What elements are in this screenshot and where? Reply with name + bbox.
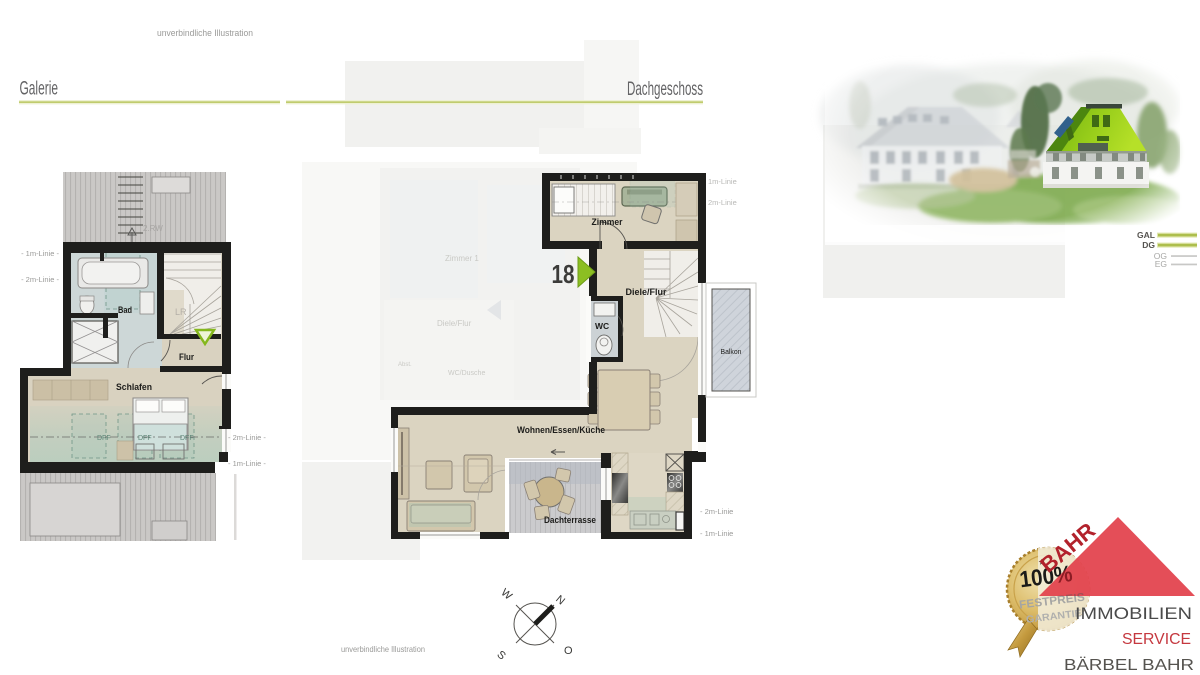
svg-text:Abst.: Abst.	[398, 362, 412, 368]
svg-text:Galerie: Galerie	[20, 78, 59, 100]
svg-text:Schlafen: Schlafen	[116, 382, 152, 392]
svg-text:Diele/Flur: Diele/Flur	[626, 287, 667, 298]
svg-text:unverbindliche Illustration: unverbindliche Illustration	[157, 28, 253, 38]
svg-text:DFF: DFF	[138, 435, 152, 442]
svg-text:Dachgeschoss: Dachgeschoss	[627, 78, 703, 100]
svg-text:- 2m-Linie -: - 2m-Linie -	[228, 433, 266, 442]
svg-text:18: 18	[552, 259, 575, 289]
svg-text:WC: WC	[595, 321, 609, 331]
svg-text:Balkon: Balkon	[721, 347, 742, 356]
svg-text:unverbindliche Illustration: unverbindliche Illustration	[341, 644, 425, 654]
svg-text:Wohnen/Essen/Küche: Wohnen/Essen/Küche	[517, 425, 605, 436]
svg-text:2m-Linie: 2m-Linie	[708, 198, 737, 207]
svg-text:1m-Linie: 1m-Linie	[708, 177, 737, 186]
svg-text:DG: DG	[1142, 240, 1155, 250]
svg-text:- 2m-Linie: - 2m-Linie	[700, 507, 733, 516]
svg-text:Diele/Flur: Diele/Flur	[437, 319, 472, 328]
svg-text:GAL: GAL	[1137, 230, 1155, 240]
svg-text:- 1m-Linie: - 1m-Linie	[700, 529, 733, 538]
svg-text:- 2m-Linie -: - 2m-Linie -	[21, 275, 59, 284]
svg-text:SERVICE: SERVICE	[1122, 631, 1191, 648]
svg-text:Flur: Flur	[179, 352, 194, 362]
svg-text:DFF: DFF	[97, 435, 111, 442]
svg-text:- 1m-Linie -: - 1m-Linie -	[21, 249, 59, 258]
svg-text:DFF: DFF	[180, 435, 194, 442]
svg-text:- 1m-Linie -: - 1m-Linie -	[228, 459, 266, 468]
svg-text:Zimmer 1: Zimmer 1	[445, 254, 479, 263]
svg-text:Bad: Bad	[118, 305, 132, 315]
svg-text:BÄRBEL BAHR: BÄRBEL BAHR	[1064, 656, 1194, 674]
svg-text:EG: EG	[1155, 259, 1167, 269]
svg-text:Zimmer: Zimmer	[592, 217, 623, 228]
svg-text:IMMOBILIEN: IMMOBILIEN	[1075, 604, 1192, 623]
svg-text:2.RW: 2.RW	[143, 224, 163, 233]
svg-text:Dachterrasse: Dachterrasse	[544, 515, 596, 525]
svg-text:WC/Dusche: WC/Dusche	[448, 370, 485, 377]
svg-text:O: O	[564, 645, 573, 657]
svg-text:LR: LR	[175, 307, 187, 317]
